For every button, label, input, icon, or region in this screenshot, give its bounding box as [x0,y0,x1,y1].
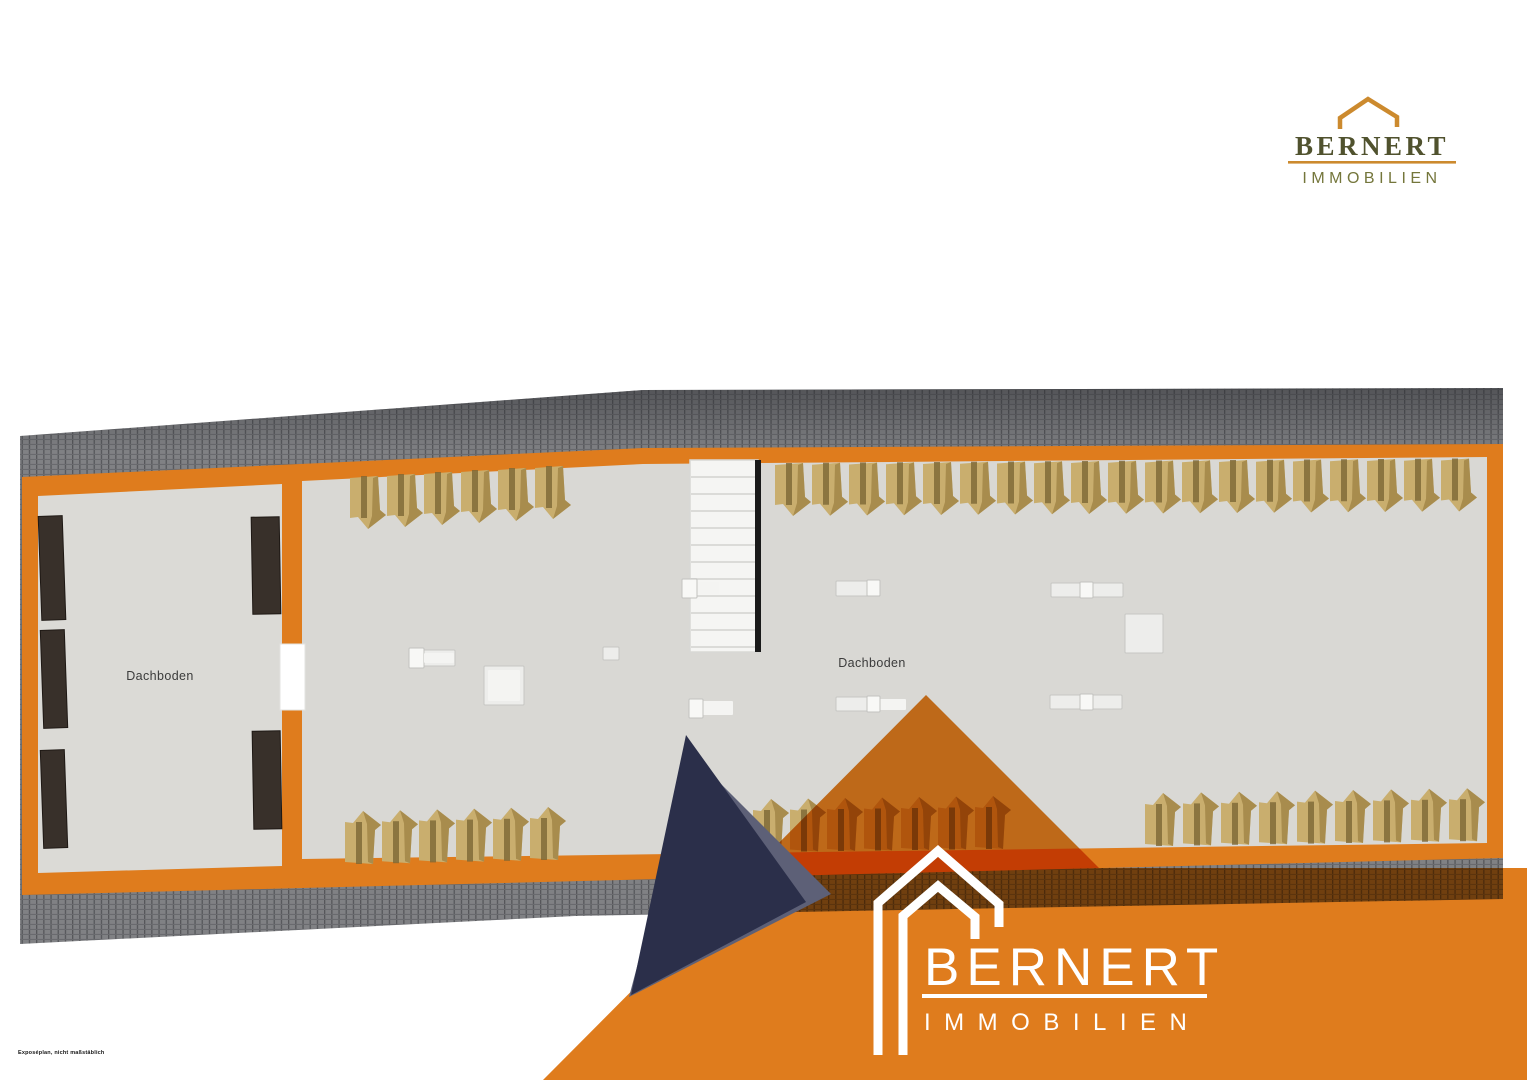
header-brand-text: BERNERT [1295,131,1449,161]
floor-object-part [488,670,520,701]
floor-object-part [682,579,697,598]
floor-object-part [409,648,424,668]
watermark-brand-text: BERNERT [924,938,1225,997]
floor-object-part [867,696,880,712]
header-logo: BERNERT IMMOBILIEN [1272,88,1472,203]
floor-object-part [424,653,454,663]
floor-object-part [1125,614,1163,653]
floor-object-part [880,699,906,710]
floor-object [836,580,880,596]
floor-object [1125,614,1163,653]
staircase [690,460,761,652]
furniture-item [251,517,281,614]
furniture-item [40,630,67,729]
floor-object-part [703,701,733,715]
furniture-item [252,731,282,829]
house-roof-icon [1340,99,1397,129]
room-label-left: Dachboden [126,669,194,683]
floor-object [603,647,619,660]
header-subtitle-text: IMMOBILIEN [1302,170,1441,187]
stair-stringer [755,460,761,652]
floor-object-part [867,580,880,596]
floor-object-part [603,647,619,660]
watermark-logo: BERNERT IMMOBILIEN [860,833,1250,1058]
floor-object-part [1080,694,1093,710]
door-opening [280,644,305,710]
disclaimer-text: Exposéplan, nicht maßstäblich [18,1050,105,1056]
watermark-subtitle-text: IMMOBILIEN [924,1009,1200,1036]
floor-object [1050,694,1122,710]
watermark-underline [922,994,1207,998]
floor-object [484,666,524,705]
furniture-item [40,750,67,849]
floor-object [1051,582,1123,598]
floor-object-part [697,582,719,594]
furniture-item [38,516,66,621]
floor-object [409,648,455,668]
room-label-main: Dachboden [838,656,906,670]
floorplan-page: Dachboden Dachboden BERNERT IMMOBILIEN B… [0,0,1527,1080]
floor-object-part [689,699,703,718]
floor-object-part [1080,582,1093,598]
header-underline [1288,161,1456,164]
